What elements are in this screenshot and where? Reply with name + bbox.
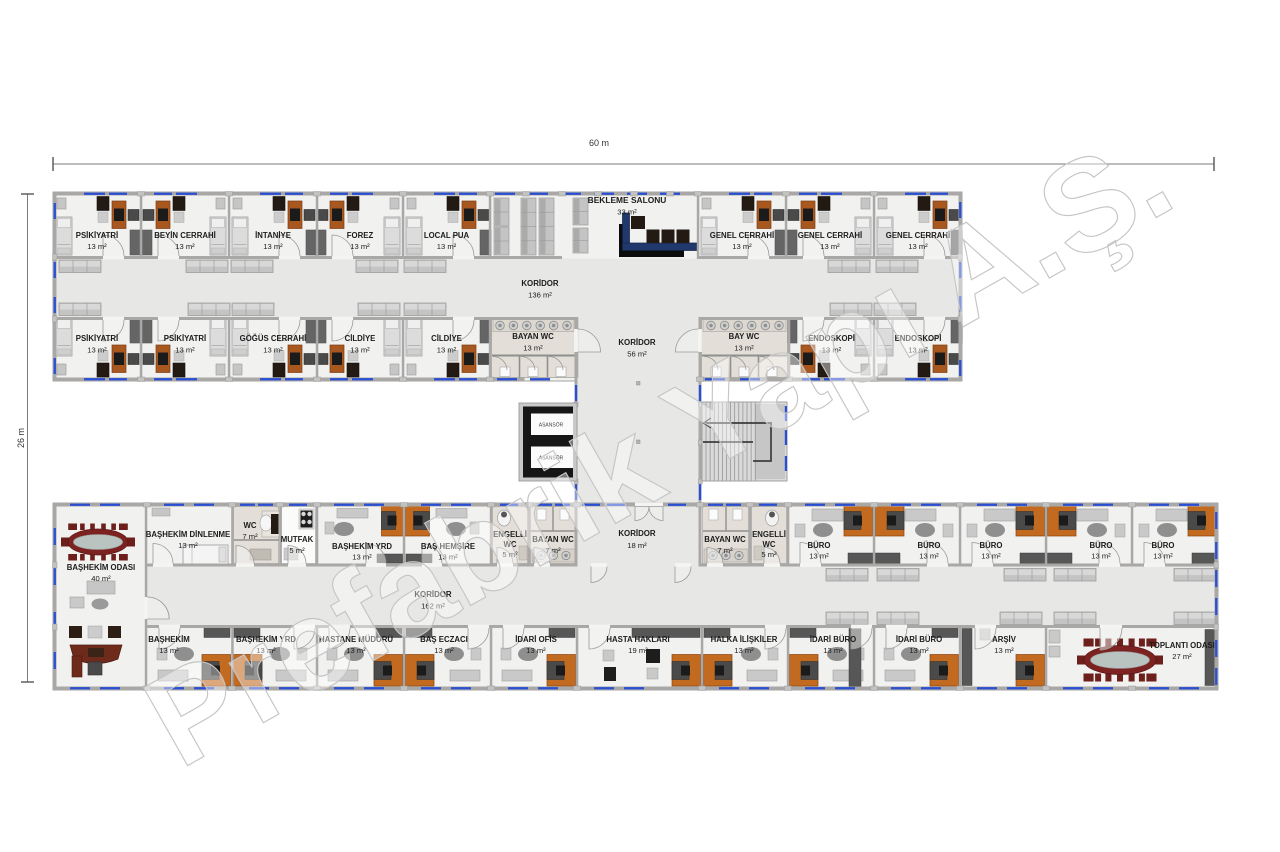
svg-text:13 m²: 13 m² [1153,552,1173,561]
svg-text:19 m²: 19 m² [628,646,648,655]
svg-text:WC: WC [244,521,257,530]
svg-text:13 m²: 13 m² [350,242,370,251]
svg-text:7 m²: 7 m² [242,532,258,541]
svg-text:ARŞİV: ARŞİV [992,635,1017,644]
svg-text:BAYAN WC: BAYAN WC [704,535,746,544]
svg-text:13 m²: 13 m² [909,646,929,655]
svg-text:BEYİN CERRAHİ: BEYİN CERRAHİ [154,231,216,240]
svg-text:GENEL CERRAHİ: GENEL CERRAHİ [798,231,862,240]
svg-text:ENGELLİ: ENGELLİ [752,530,786,539]
svg-text:13 m²: 13 m² [823,646,843,655]
svg-text:13 m²: 13 m² [87,242,107,251]
svg-text:GÖĞÜS CERRAHİ: GÖĞÜS CERRAHİ [240,334,307,343]
svg-text:13 m²: 13 m² [809,552,829,561]
svg-text:13 m²: 13 m² [919,552,939,561]
svg-text:CİLDİYE: CİLDİYE [431,334,462,343]
svg-text:PSİKİYATRİ: PSİKİYATRİ [76,334,118,343]
svg-text:56 m²: 56 m² [627,350,647,359]
svg-text:13 m²: 13 m² [175,242,195,251]
svg-text:13 m²: 13 m² [994,646,1014,655]
svg-text:BÜRO: BÜRO [1090,541,1113,550]
svg-text:TOPLANTI ODASI: TOPLANTI ODASI [1149,641,1215,650]
svg-text:13 m²: 13 m² [175,346,195,355]
svg-text:HALKA İLİŞKİLER: HALKA İLİŞKİLER [711,635,778,644]
svg-text:HASTA HAKLARI: HASTA HAKLARI [606,635,669,644]
svg-text:İDARİ BÜRO: İDARİ BÜRO [896,635,942,644]
svg-text:13 m²: 13 m² [1091,552,1111,561]
svg-text:MUTFAK: MUTFAK [281,535,314,544]
svg-text:13 m²: 13 m² [732,242,752,251]
svg-text:BAYAN WC: BAYAN WC [512,332,554,341]
svg-text:13 m²: 13 m² [820,242,840,251]
svg-text:26 m: 26 m [16,428,26,448]
svg-text:FOREZ: FOREZ [347,231,374,240]
svg-text:5 m²: 5 m² [289,546,305,555]
svg-text:LOCAL PUA: LOCAL PUA [424,231,470,240]
svg-text:13 m²: 13 m² [734,646,754,655]
svg-text:40 m²: 40 m² [91,574,111,583]
svg-text:136 m²: 136 m² [528,291,552,300]
svg-text:BÜRO: BÜRO [1152,541,1175,550]
svg-text:WC: WC [763,540,776,549]
svg-text:13 m²: 13 m² [526,646,546,655]
svg-text:13 m²: 13 m² [437,346,457,355]
svg-text:GENEL CERRAHİ: GENEL CERRAHİ [710,231,774,240]
svg-text:13 m²: 13 m² [981,552,1001,561]
svg-text:33 m²: 33 m² [617,208,637,217]
svg-text:CİLDİYE: CİLDİYE [345,334,376,343]
svg-text:13 m²: 13 m² [263,242,283,251]
svg-text:60 m: 60 m [589,138,609,148]
svg-text:BEKLEME SALONU: BEKLEME SALONU [588,195,667,205]
svg-text:13 m²: 13 m² [437,242,457,251]
svg-text:KORİDOR: KORİDOR [521,279,559,288]
svg-text:İDARİ OFİS: İDARİ OFİS [515,635,557,644]
svg-text:13 m²: 13 m² [263,346,283,355]
svg-text:PSİKİYATRİ: PSİKİYATRİ [164,334,206,343]
svg-text:İDARİ BÜRO: İDARİ BÜRO [810,635,856,644]
svg-text:İNTANİYE: İNTANİYE [255,231,291,240]
svg-text:13 m²: 13 m² [523,344,543,353]
svg-text:13 m²: 13 m² [87,346,107,355]
svg-text:27 m²: 27 m² [1172,652,1192,661]
svg-text:BÜRO: BÜRO [918,541,941,550]
svg-text:KORİDOR: KORİDOR [618,338,656,347]
svg-text:5 m²: 5 m² [761,550,777,559]
svg-text:BAŞHEKİM ODASI: BAŞHEKİM ODASI [67,563,135,572]
svg-text:PSİKİYATRİ: PSİKİYATRİ [76,231,118,240]
svg-text:13 m²: 13 m² [350,346,370,355]
svg-text:7 m²: 7 m² [717,546,733,555]
svg-text:BAŞHEKİM DİNLENME: BAŞHEKİM DİNLENME [146,530,230,539]
svg-text:BÜRO: BÜRO [808,541,831,550]
svg-text:13 m²: 13 m² [178,541,198,550]
svg-text:BÜRO: BÜRO [980,541,1003,550]
